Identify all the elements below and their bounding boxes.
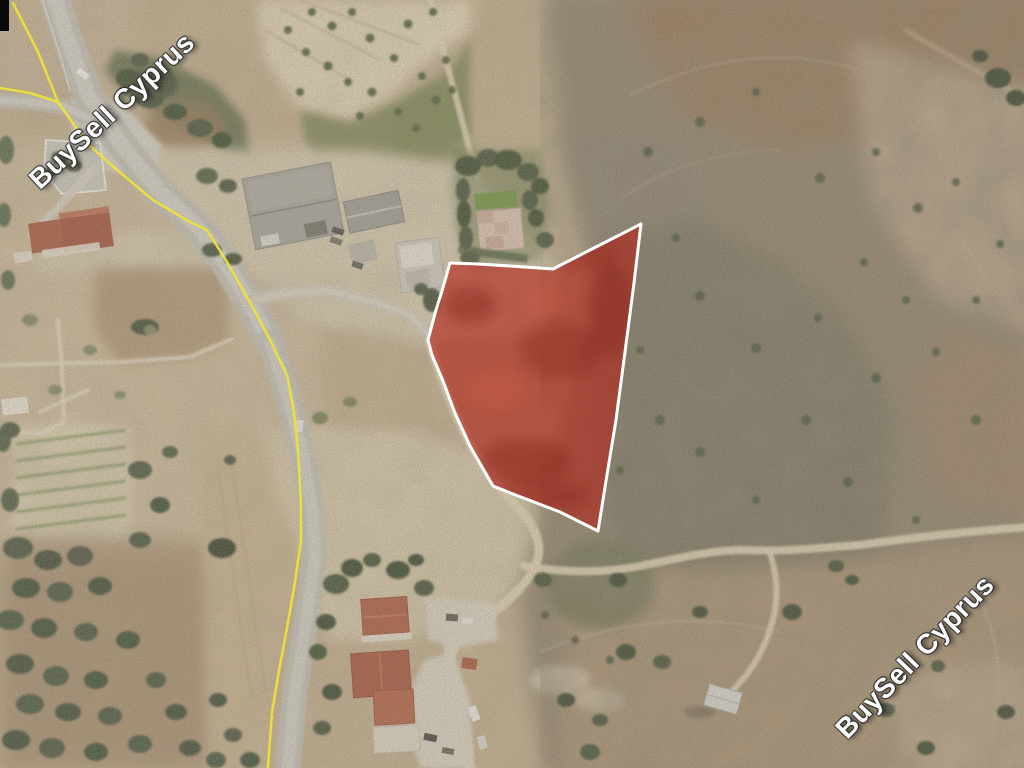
- corner-marker: [0, 0, 9, 31]
- satellite-map-image: BuySell Cyprus BuySell Cyprus: [0, 0, 1024, 768]
- satellite-canvas: [0, 0, 1024, 768]
